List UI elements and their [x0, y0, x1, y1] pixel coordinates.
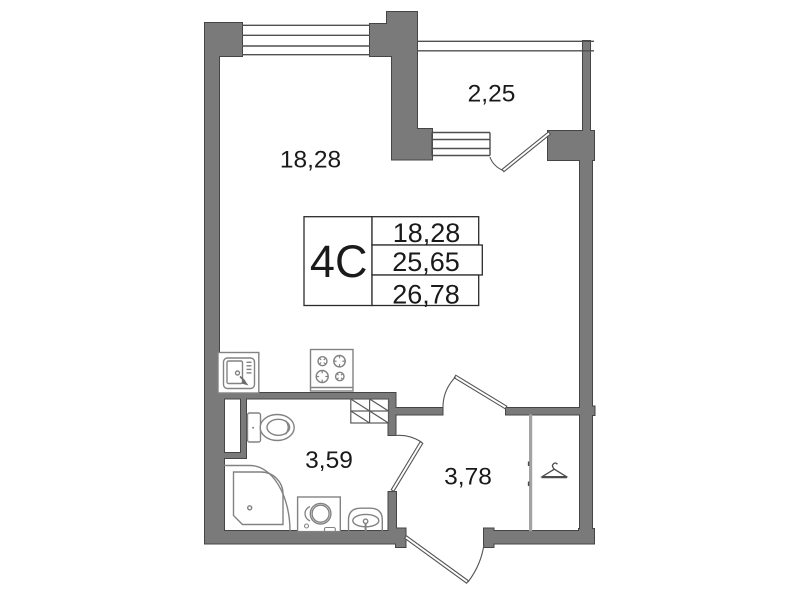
- svg-text:18,28: 18,28: [280, 147, 341, 174]
- svg-text:3,78: 3,78: [444, 464, 492, 491]
- svg-text:25,65: 25,65: [392, 247, 460, 277]
- svg-text:18,28: 18,28: [393, 218, 461, 248]
- svg-text:4C: 4C: [310, 236, 368, 287]
- svg-text:2,25: 2,25: [468, 81, 516, 108]
- svg-text:3,59: 3,59: [305, 447, 353, 474]
- svg-text:26,78: 26,78: [392, 279, 460, 309]
